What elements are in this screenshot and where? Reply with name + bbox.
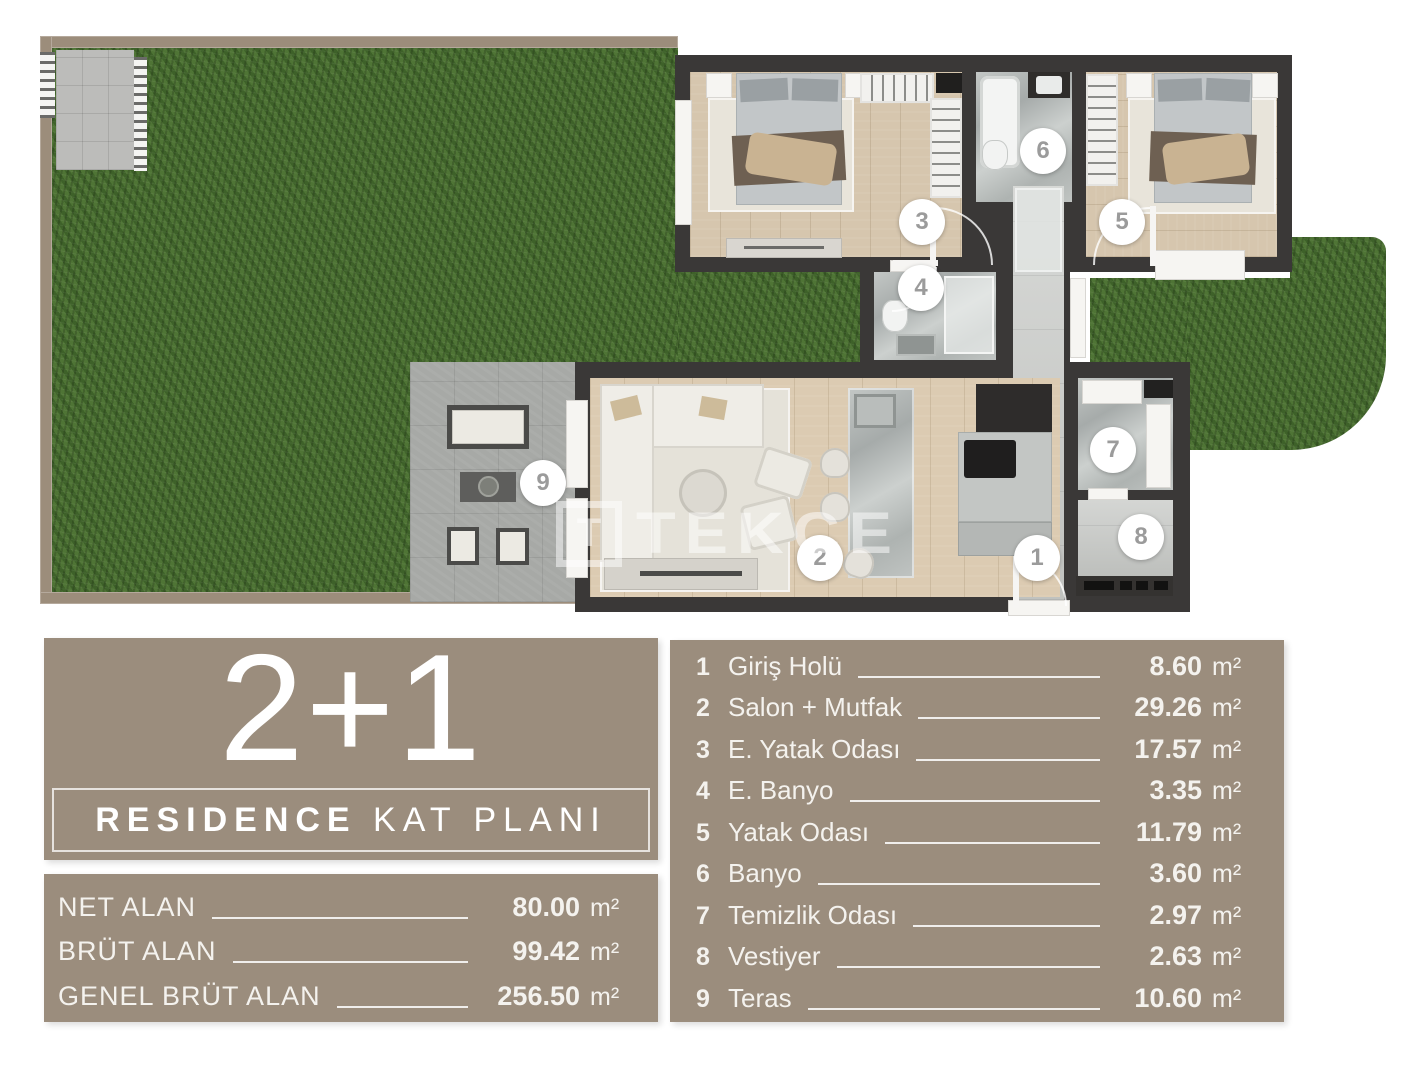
legend-rule [808, 1008, 1100, 1010]
legend-unit: m² [1202, 943, 1258, 976]
watermark-logo-letter: T [577, 511, 601, 556]
legend-rule [916, 759, 1100, 761]
legend-unit: m² [1202, 860, 1258, 893]
legend-row-3: 3E. Yatak Odası17.57m² [696, 727, 1258, 769]
legend-rule [837, 966, 1101, 968]
area-row: GENEL BRÜT ALAN256.50m² [58, 971, 636, 1016]
area-rule [233, 961, 468, 963]
type-panel: 2+1 RESIDENCE KAT PLANI [44, 638, 658, 860]
floorplan-page: { "plan": { "watermark": "TEKCE", "marke… [0, 0, 1408, 1080]
plan-marker-3: 3 [899, 199, 945, 245]
floorplan-canvas: 123456789 T TEKCE [0, 0, 1408, 630]
legend-name: Temizlik Odası [728, 900, 897, 935]
legend-no: 2 [696, 694, 728, 727]
legend-row-9: 9Teras10.60m² [696, 976, 1258, 1018]
legend-no: 1 [696, 653, 728, 686]
legend-value: 3.60 [1116, 858, 1202, 893]
legend-rule [913, 925, 1100, 927]
area-rule [212, 917, 468, 919]
legend-value: 10.60 [1116, 983, 1202, 1018]
legend-row-7: 7Temizlik Odası2.97m² [696, 893, 1258, 935]
area-row: BRÜT ALAN99.42m² [58, 927, 636, 972]
legend-name: Vestiyer [728, 941, 821, 976]
plan-marker-6: 6 [1020, 128, 1066, 174]
area-label: BRÜT ALAN [58, 936, 217, 971]
area-rows: NET ALAN80.00m²BRÜT ALAN99.42m²GENEL BRÜ… [58, 882, 636, 1016]
legend-name: Giriş Holü [728, 651, 842, 686]
legend-name: E. Yatak Odası [728, 734, 900, 769]
legend-no: 8 [696, 943, 728, 976]
area-label: NET ALAN [58, 892, 196, 927]
area-row: NET ALAN80.00m² [58, 882, 636, 927]
plan-title-bold: RESIDENCE [95, 801, 356, 840]
legend-row-4: 4E. Banyo3.35m² [696, 769, 1258, 811]
legend-value: 29.26 [1116, 692, 1202, 727]
area-value: 99.42 [484, 936, 580, 971]
areas-panel: NET ALAN80.00m²BRÜT ALAN99.42m²GENEL BRÜ… [44, 874, 658, 1022]
legend-no: 5 [696, 819, 728, 852]
legend-unit: m² [1202, 736, 1258, 769]
legend-value: 2.63 [1116, 941, 1202, 976]
legend-no: 3 [696, 736, 728, 769]
legend-unit: m² [1202, 985, 1258, 1018]
area-rule [337, 1006, 468, 1008]
watermark-text: TEKCE [636, 500, 901, 567]
area-label: GENEL BRÜT ALAN [58, 981, 321, 1016]
legend-rows: 1Giriş Holü8.60m²2Salon + Mutfak29.26m²3… [696, 644, 1258, 1018]
unit-type-label: 2+1 [219, 632, 483, 784]
legend-rule [850, 800, 1100, 802]
legend-panel: 1Giriş Holü8.60m²2Salon + Mutfak29.26m²3… [670, 640, 1284, 1022]
legend-row-2: 2Salon + Mutfak29.26m² [696, 686, 1258, 728]
legend-unit: m² [1202, 653, 1258, 686]
legend-name: Banyo [728, 858, 802, 893]
plan-title-box: RESIDENCE KAT PLANI [52, 788, 650, 852]
legend-no: 4 [696, 777, 728, 810]
legend-name: Teras [728, 983, 792, 1018]
legend-rule [858, 676, 1100, 678]
legend-rule [918, 717, 1100, 719]
legend-row-6: 6Banyo3.60m² [696, 852, 1258, 894]
legend-rule [885, 842, 1100, 844]
legend-value: 11.79 [1116, 817, 1202, 852]
legend-row-8: 8Vestiyer2.63m² [696, 935, 1258, 977]
legend-no: 6 [696, 860, 728, 893]
plan-marker-4: 4 [898, 265, 944, 311]
legend-value: 3.35 [1116, 775, 1202, 810]
area-value: 80.00 [484, 892, 580, 927]
legend-row-1: 1Giriş Holü8.60m² [696, 644, 1258, 686]
legend-unit: m² [1202, 819, 1258, 852]
area-unit: m² [580, 983, 636, 1016]
legend-unit: m² [1202, 902, 1258, 935]
legend-row-5: 5Yatak Odası11.79m² [696, 810, 1258, 852]
area-value: 256.50 [484, 981, 580, 1016]
legend-name: Yatak Odası [728, 817, 869, 852]
plan-marker-8: 8 [1118, 514, 1164, 560]
legend-value: 8.60 [1116, 651, 1202, 686]
plan-marker-5: 5 [1099, 199, 1145, 245]
plan-marker-1: 1 [1014, 535, 1060, 581]
plan-title-light: KAT PLANI [357, 801, 607, 840]
legend-name: Salon + Mutfak [728, 692, 902, 727]
area-unit: m² [580, 894, 636, 927]
legend-value: 17.57 [1116, 734, 1202, 769]
area-unit: m² [580, 938, 636, 971]
legend-unit: m² [1202, 777, 1258, 810]
legend-no: 9 [696, 985, 728, 1018]
legend-no: 7 [696, 902, 728, 935]
watermark: T TEKCE [556, 500, 873, 567]
legend-rule [818, 883, 1100, 885]
legend-name: E. Banyo [728, 775, 834, 810]
legend-value: 2.97 [1116, 900, 1202, 935]
plan-marker-7: 7 [1090, 427, 1136, 473]
legend-unit: m² [1202, 694, 1258, 727]
watermark-logo-icon: T [556, 501, 622, 567]
